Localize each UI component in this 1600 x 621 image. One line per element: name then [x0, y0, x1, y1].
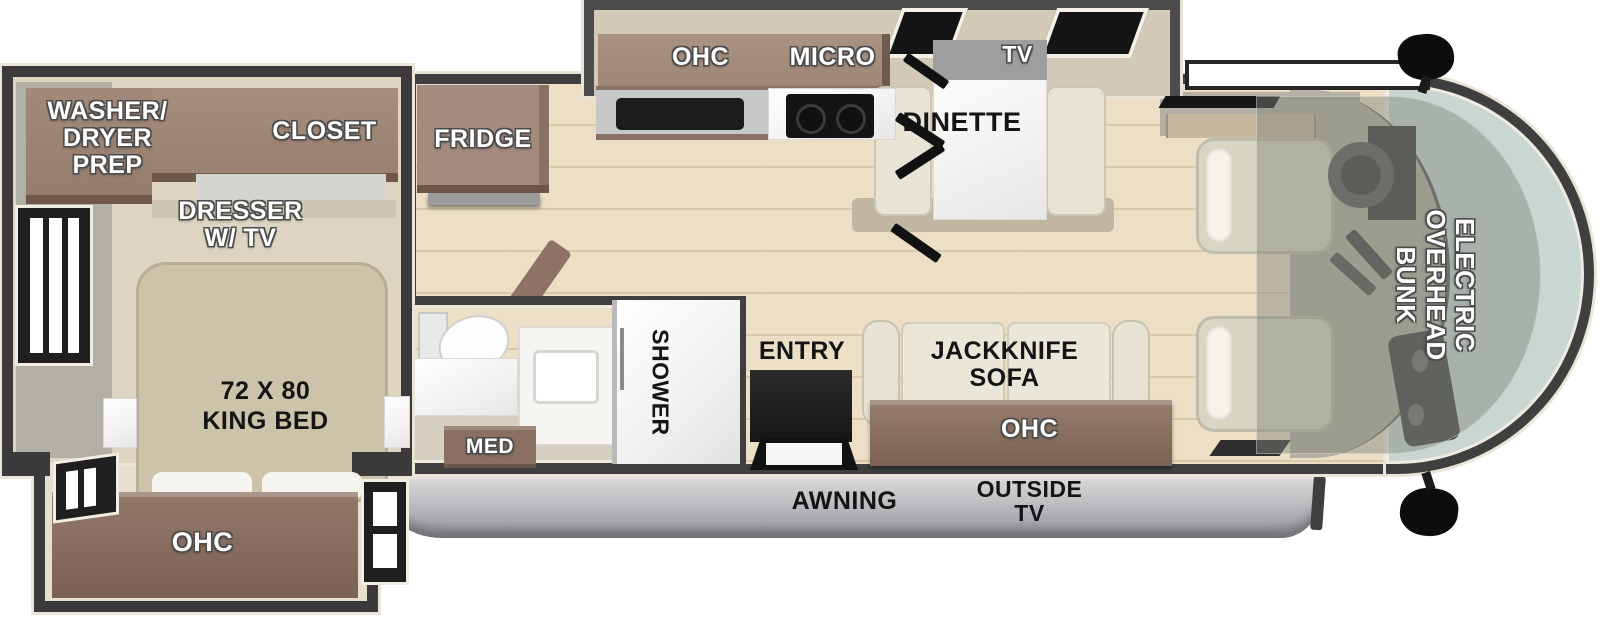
label-dinette: DINETTE	[882, 108, 1042, 137]
bedroom-wall-seg-right	[352, 452, 412, 476]
label-outside-tv: OUTSIDE TV	[962, 477, 1097, 525]
stove-burner	[796, 104, 826, 134]
bath-sink	[533, 350, 599, 404]
shower-door-handle	[620, 328, 624, 390]
entry-step	[766, 443, 842, 465]
kitchen-sink	[616, 98, 744, 130]
label-electric-overhead-bunk-wrap: ELECTRIC OVERHEAD BUNK	[1315, 165, 1555, 405]
label-micro: MICRO	[770, 44, 895, 71]
label-jackknife-sofa: JACKKNIFE SOFA	[912, 338, 1097, 392]
label-shower: SHOWER	[648, 302, 673, 462]
rv-floorplan: WASHER/ DRYER PREP CLOSET DRESSER W/ TV …	[0, 0, 1600, 621]
bedroom-window-left	[18, 208, 90, 363]
label-med: MED	[447, 436, 533, 459]
entry-door	[750, 370, 852, 442]
dinette-bench-right	[1046, 86, 1106, 216]
label-ohc-bedroom: OHC	[130, 528, 275, 557]
label-king-bed: 72 X 80 KING BED	[168, 376, 363, 436]
label-fridge: FRIDGE	[424, 126, 542, 153]
label-closet: CLOSET	[252, 118, 397, 145]
bedroom-window-lower-right	[364, 482, 406, 582]
driver-headrest	[1206, 148, 1232, 242]
label-ohc-kitchen: OHC	[648, 44, 753, 71]
bedroom-window-lower-left	[56, 456, 116, 520]
label-awning: AWNING	[772, 488, 917, 515]
slideout-window-right	[1039, 8, 1149, 58]
label-tv-dinette: TV	[985, 42, 1050, 67]
bath-counter	[410, 358, 518, 416]
cab-side-window	[1185, 60, 1430, 90]
fridge-base	[428, 193, 540, 205]
shower-stall	[612, 300, 740, 464]
label-dresser-tv: DRESSER W/ TV	[158, 198, 323, 252]
mirror-bottom	[1398, 485, 1461, 539]
label-electric-overhead-bunk: ELECTRIC OVERHEAD BUNK	[1391, 209, 1478, 360]
label-washer-dryer-prep: WASHER/ DRYER PREP	[30, 98, 185, 179]
nightstand-right	[384, 396, 410, 448]
label-entry: ENTRY	[748, 338, 856, 365]
passenger-headrest	[1206, 326, 1232, 420]
bedroom-wall-step-left	[2, 452, 50, 476]
nightstand-left	[103, 398, 137, 448]
stove-burner	[836, 104, 866, 134]
label-ohc-living: OHC	[972, 416, 1087, 443]
awning-end-cap	[1310, 476, 1326, 531]
